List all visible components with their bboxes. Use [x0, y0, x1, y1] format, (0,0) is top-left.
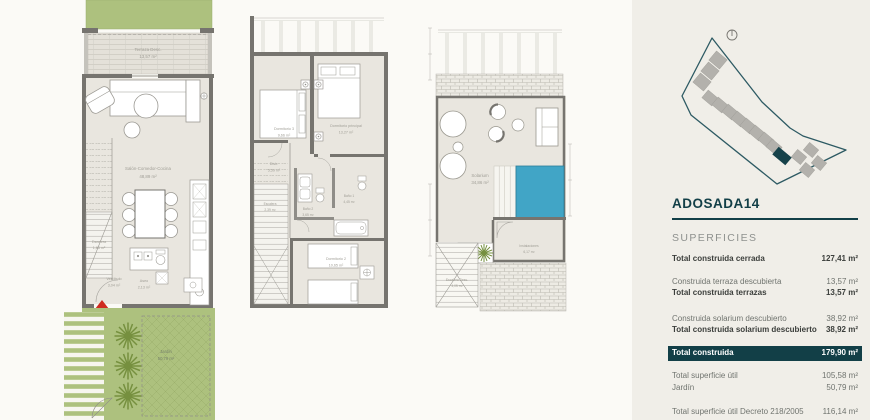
table-row: Total construida cerrada 127,41 m² [672, 254, 858, 265]
building-footprints [693, 51, 827, 178]
table-row: Construida terraza descubierta 13,57 m² [672, 277, 858, 288]
coffee-table [134, 94, 158, 118]
unit-title: ADOSADA14 [672, 196, 858, 220]
row-value: 13,57 m² [826, 288, 858, 299]
bath2-label: Baño 2 [303, 207, 314, 211]
bath1-area: 4,45 m² [343, 200, 355, 204]
table-row: Total superficie útil 105,58 m² [672, 371, 858, 382]
stairs-area: 2,39 m² [264, 208, 276, 212]
pool [516, 166, 564, 218]
toilet-area: 2,13 m² [138, 286, 151, 290]
row-value: 38,92 m² [826, 314, 858, 325]
round-planter [440, 111, 466, 137]
table-row: Jardín 50,79 m² [672, 383, 858, 394]
section-heading: SUPERFICIES [672, 232, 858, 244]
bath1-label: Baño 1 [344, 194, 355, 198]
table-row: Total construida terrazas 13,57 m² [672, 288, 858, 299]
row-label: Construida terraza descubierta [672, 277, 781, 288]
round-planter [440, 153, 466, 179]
side-table [512, 119, 524, 131]
garden-hatch-area [142, 316, 210, 416]
row-label: Total construida [672, 348, 734, 359]
row-value: 116,14 m² [823, 407, 858, 418]
row-value: 127,41 m² [822, 254, 858, 265]
pergola [254, 18, 384, 52]
small-round-table [453, 142, 463, 152]
bedroom3-label: Dormitorio 3 [274, 127, 294, 131]
terrace-label: Terraza Desc. [134, 47, 161, 52]
row-label: Jardín [672, 383, 694, 394]
wall-fixture-icon [201, 93, 207, 99]
outdoor-sofa [536, 108, 558, 146]
surfaces-table: Total construida cerrada 127,41 m² Const… [672, 254, 858, 420]
row-label: Construida solarium descubierto [672, 314, 787, 325]
master-area: 13,27 m² [339, 131, 354, 135]
installations-area: 6,17 m² [523, 250, 535, 254]
pool-deck [494, 166, 516, 218]
floorplan-sheet: Terraza Desc. 13,57 m² Escalera 1,86 m² [0, 0, 870, 420]
side-table [124, 122, 140, 138]
lounge-chair [490, 104, 505, 119]
ground-floor-plan: Terraza Desc. 13,57 m² Escalera 1,86 m² [62, 0, 215, 420]
bath2-area: 3,65 m² [302, 213, 314, 217]
stairs-desc-label: Escalera Desc. [446, 278, 468, 282]
stairs-desc-area: 4,05 m² [451, 284, 463, 288]
living-area: 48,89 m² [139, 174, 157, 179]
stairs-area: 1,86 m² [93, 246, 106, 250]
site-plan [660, 8, 865, 193]
north-icon [727, 30, 737, 40]
solarium-label: Solarium [471, 173, 489, 178]
row-label: Total superficie útil [672, 371, 738, 382]
brick-paving [480, 263, 566, 311]
master-label: Dormitorio principal [330, 124, 362, 128]
rear-garden [86, 0, 212, 29]
hall-area: 3,04 m² [108, 284, 121, 288]
toilet-label: Aseo [140, 279, 148, 283]
surfaces-panel: ADOSADA14 SUPERFICIES Total construida c… [672, 196, 858, 420]
table-row: Total construida solarium descubierto 38… [672, 325, 858, 336]
dining-table [123, 190, 178, 238]
brick-band [436, 74, 563, 96]
row-label: Total superficie útil Decreto 218/2005 [672, 407, 804, 418]
row-value: 38,92 m² [826, 325, 858, 336]
row-value: 179,90 m² [822, 348, 858, 359]
lounge-chair [489, 127, 504, 142]
installations-floor [493, 220, 566, 262]
row-label: Total construida solarium descubierto [672, 325, 817, 336]
pergola [438, 30, 562, 74]
installations-label: Instalaciones [519, 244, 539, 248]
row-label: Total construida terrazas [672, 288, 767, 299]
living-label: Salón-Comedor-Cocina [125, 166, 171, 171]
bed-master [318, 64, 360, 118]
garden-area: 50,79 m² [158, 356, 175, 361]
row-value: 50,79 m² [826, 383, 858, 394]
solarium-area: 34,86 m² [471, 180, 489, 185]
row-value: 13,57 m² [826, 277, 858, 288]
row-label: Total construida cerrada [672, 254, 765, 265]
bedroom3-area: 9,66 m² [278, 134, 291, 138]
terrace-area: 13,57 m² [139, 54, 157, 59]
stairs-label: Escalera [92, 240, 107, 244]
solarium-plan: Solarium 34,86 m² Instalaciones 6,17 m² … [428, 22, 573, 337]
bedroom2-label: Dormitorio 2 [326, 257, 346, 261]
garden-label: Jardín [160, 349, 172, 354]
row-value: 105,58 m² [822, 371, 858, 382]
stairs-label: Escalera [264, 202, 277, 206]
table-row: Construida solarium descubierto 38,92 m² [672, 314, 858, 325]
table-row: Total superficie útil Decreto 218/2005 1… [672, 407, 858, 418]
first-floor-plan: Dormitorio 3 9,66 m² Dormitorio principa… [248, 8, 390, 310]
table-row-total: Total construida 179,90 m² [668, 346, 862, 362]
bedroom2-area: 10,65 m² [329, 264, 344, 268]
